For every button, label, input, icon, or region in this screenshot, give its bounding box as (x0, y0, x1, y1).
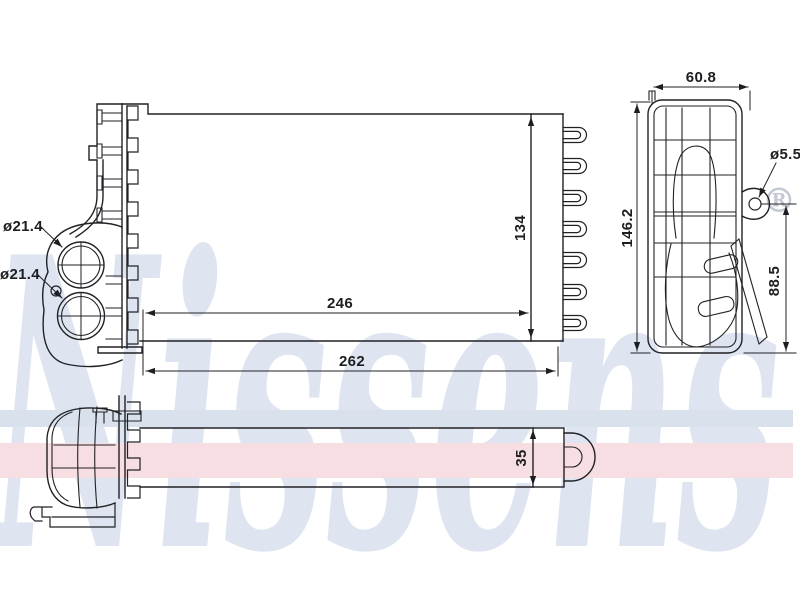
core-top-edge (122, 104, 563, 114)
label-overall-width: 262 (339, 353, 365, 370)
registered-trademark-icon: ® (762, 181, 796, 221)
watermark-brand-text: Nissens (0, 171, 780, 600)
label-thickness: 35 (513, 449, 530, 466)
label-pipe-lower: ø21.4 (0, 266, 40, 283)
label-core-width: 246 (327, 295, 353, 312)
technical-drawing: Nissens ® (0, 0, 800, 600)
drawing-page: Nissens ® (0, 0, 800, 600)
label-side-height: 146.2 (619, 208, 636, 247)
watermark-layer: Nissens ® (0, 171, 796, 600)
label-pipe-upper: ø21.4 (3, 218, 43, 235)
label-core-height: 134 (512, 215, 529, 241)
label-mount-hole: ø5.5 (770, 146, 800, 163)
label-hole-to-bottom: 88.5 (766, 266, 783, 296)
label-side-width: 60.8 (686, 69, 716, 86)
